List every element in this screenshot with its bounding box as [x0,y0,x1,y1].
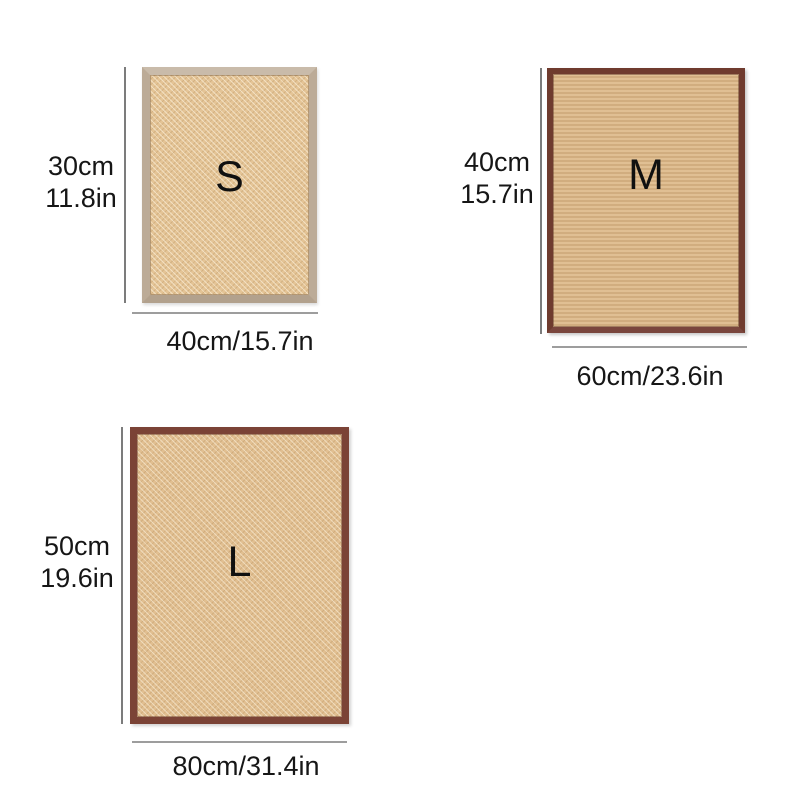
mat-m: M [547,68,745,333]
mat-s: S [142,67,317,303]
height-label-s-cm: 30cm [38,151,124,183]
height-dimension-line-l [121,427,123,724]
height-dimension-line-m [540,68,542,334]
height-label-l-in: 19.6in [34,563,120,595]
mat-l: L [130,427,349,724]
width-label-m: 60cm/23.6in [550,362,750,390]
height-dimension-line-s [124,67,126,303]
width-dimension-line-l [132,741,347,743]
mat-letter-l: L [228,538,252,587]
width-label-s: 40cm/15.7in [140,327,340,355]
height-label-m-cm: 40cm [454,147,540,179]
width-dimension-line-s [132,312,318,314]
width-label-l: 80cm/31.4in [146,752,346,780]
height-label-s: 30cm 11.8in [38,151,124,214]
height-label-m-in: 15.7in [454,179,540,211]
height-label-l: 50cm 19.6in [34,531,120,594]
mat-letter-s: S [215,153,244,202]
height-label-l-cm: 50cm [34,531,120,563]
size-chart: 30cm 11.8in S 40cm/15.7in 40cm 15.7in M … [0,0,800,800]
height-label-m: 40cm 15.7in [454,147,540,210]
width-dimension-line-m [552,346,747,348]
height-label-s-in: 11.8in [38,183,124,215]
mat-letter-m: M [628,151,664,200]
